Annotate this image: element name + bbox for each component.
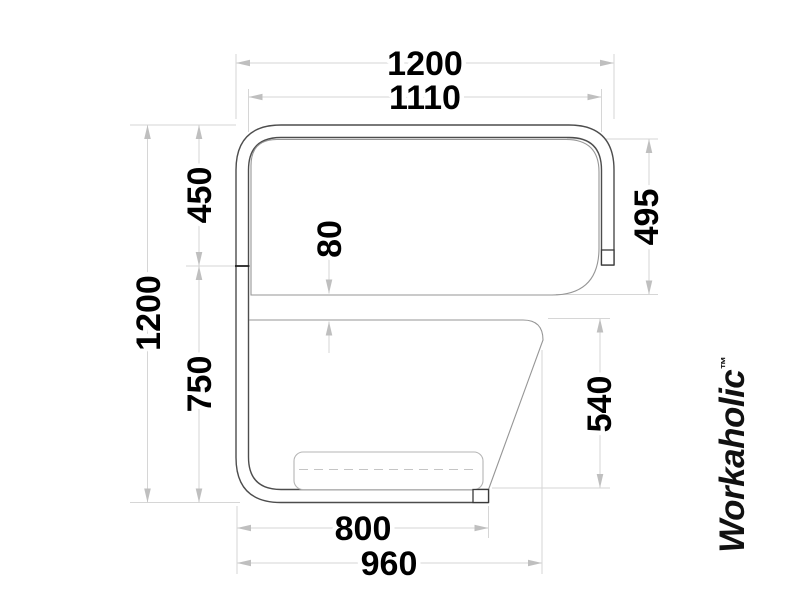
tube-end-cap-right xyxy=(602,250,615,265)
trademark-symbol: ™ xyxy=(718,357,733,370)
dim-lower-height-label: 750 xyxy=(181,356,219,413)
brand-name: Workaholic xyxy=(713,370,752,553)
tube-end-cap-bottom xyxy=(473,490,489,503)
dim-base-length-label: 960 xyxy=(361,545,418,583)
seat-cushion xyxy=(294,452,483,490)
drawing-page: 1200 1110 1200 450 750 495 80 540 800 96… xyxy=(0,0,790,600)
brand-logo-text: Workaholic™ xyxy=(713,357,752,553)
dim-upper-height-label: 450 xyxy=(181,167,219,224)
dim-total-height-label: 1200 xyxy=(130,275,168,351)
product-outline xyxy=(235,125,614,503)
dim-seat-length-label: 800 xyxy=(335,510,392,548)
dim-total-width-label: 1200 xyxy=(387,45,463,83)
dim-inner-width-label: 1110 xyxy=(389,79,461,117)
tube-frame xyxy=(236,125,614,503)
dim-lower-panel-height-label: 540 xyxy=(581,376,619,433)
dim-panel-height-label: 495 xyxy=(628,189,666,246)
dimension-drawing-svg: 1200 1110 1200 450 750 495 80 540 800 96… xyxy=(0,0,790,600)
brand-logo: Workaholic™ xyxy=(713,357,752,553)
dim-gap-label: 80 xyxy=(311,220,349,258)
upper-panel xyxy=(251,140,599,296)
